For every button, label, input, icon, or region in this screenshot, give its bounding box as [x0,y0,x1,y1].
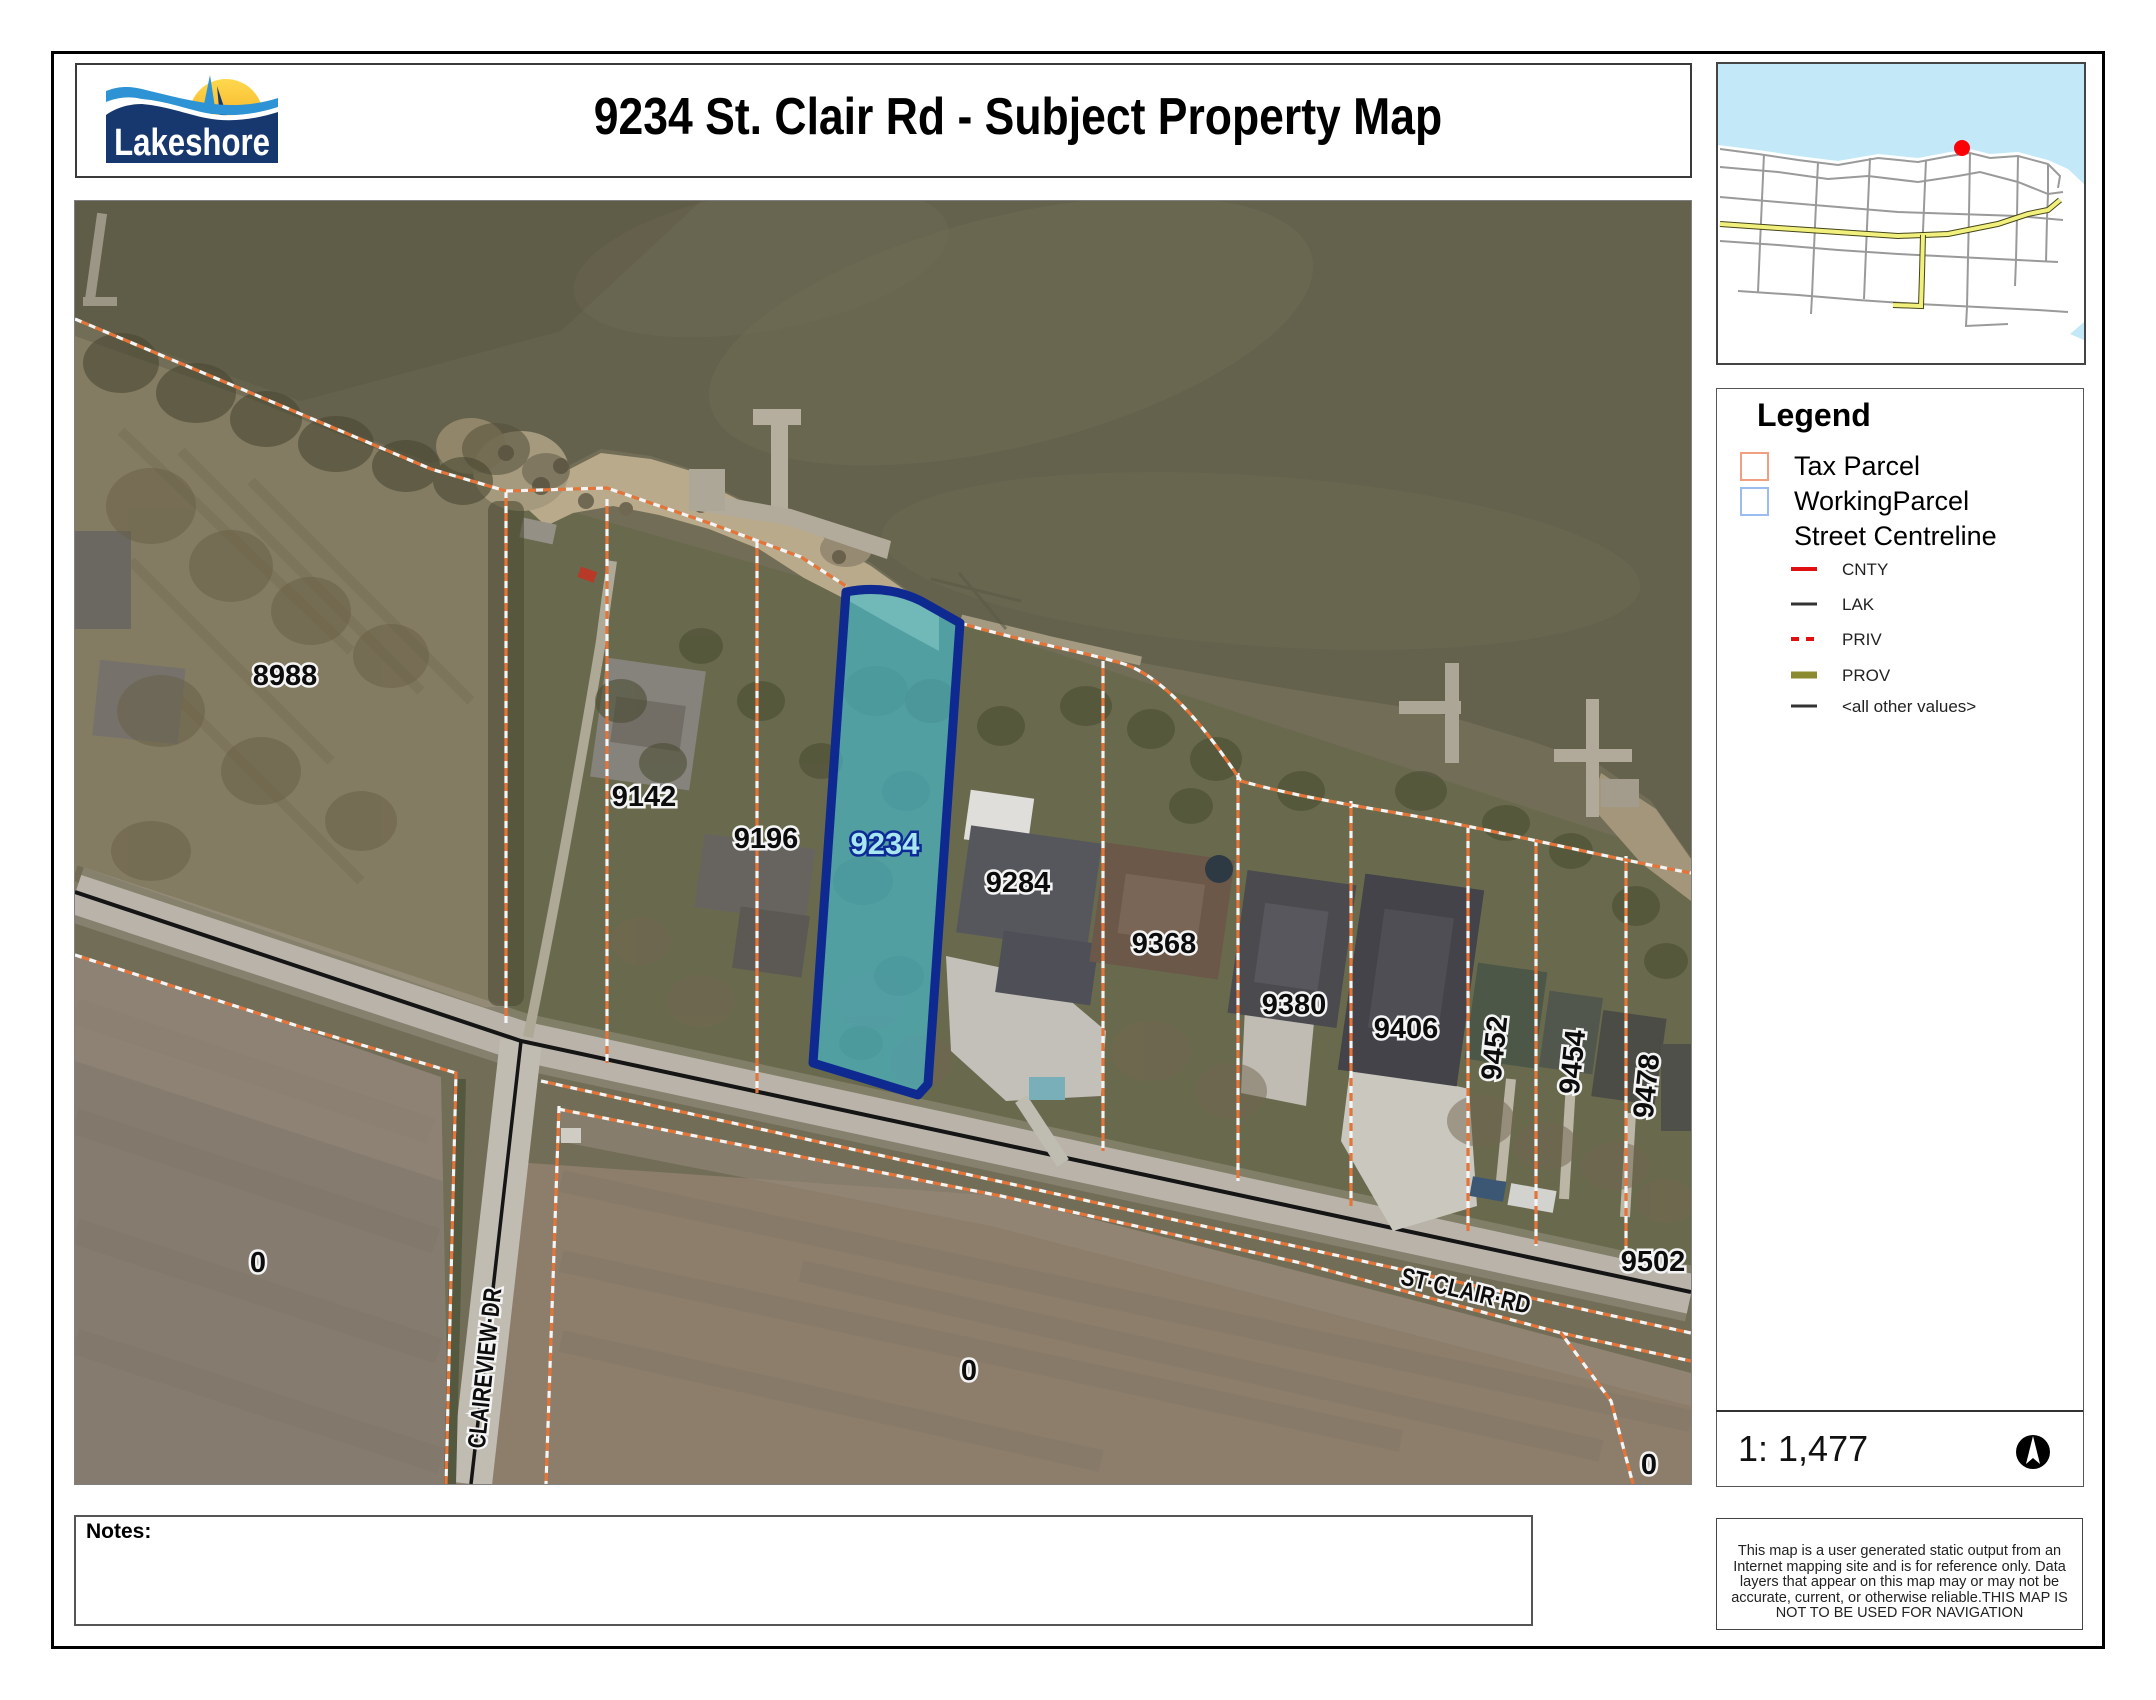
svg-text:Lakeshore: Lakeshore [114,122,270,164]
svg-text:9234: 9234 [851,826,921,861]
